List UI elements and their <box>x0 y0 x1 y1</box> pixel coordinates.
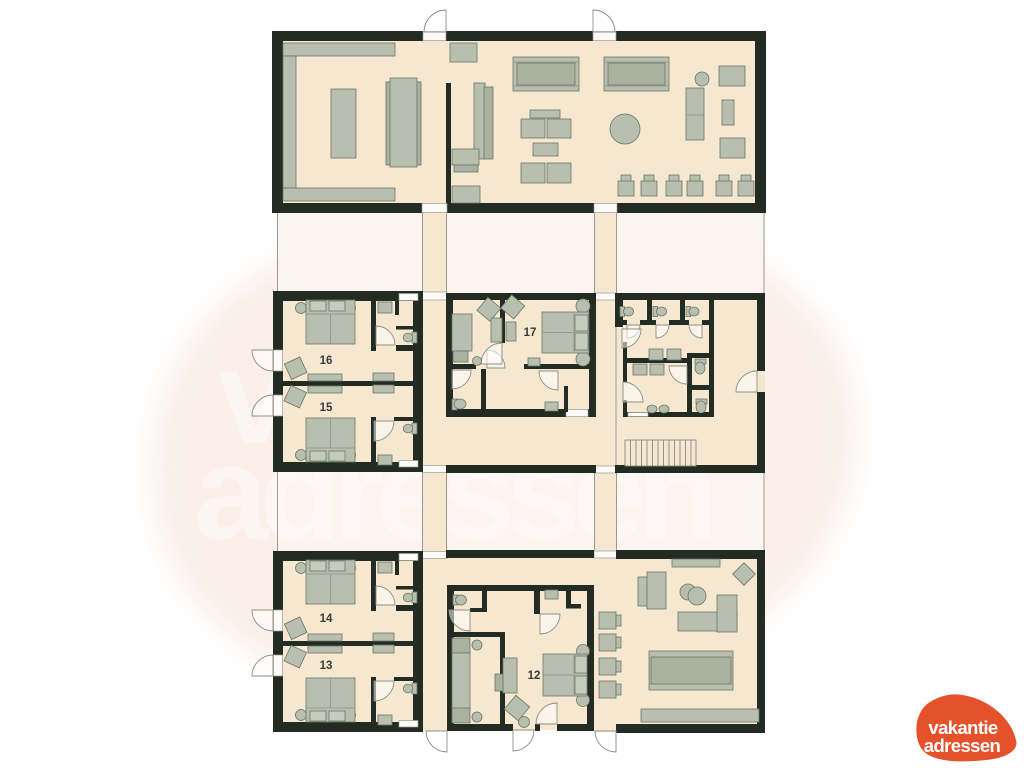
svg-text:16: 16 <box>320 355 333 367</box>
svg-text:13: 13 <box>320 660 333 672</box>
svg-text:15: 15 <box>320 402 333 414</box>
svg-text:14: 14 <box>320 613 333 625</box>
svg-text:17: 17 <box>524 327 537 339</box>
svg-text:12: 12 <box>528 670 541 682</box>
svg-text:adressen: adressen <box>924 735 1001 756</box>
